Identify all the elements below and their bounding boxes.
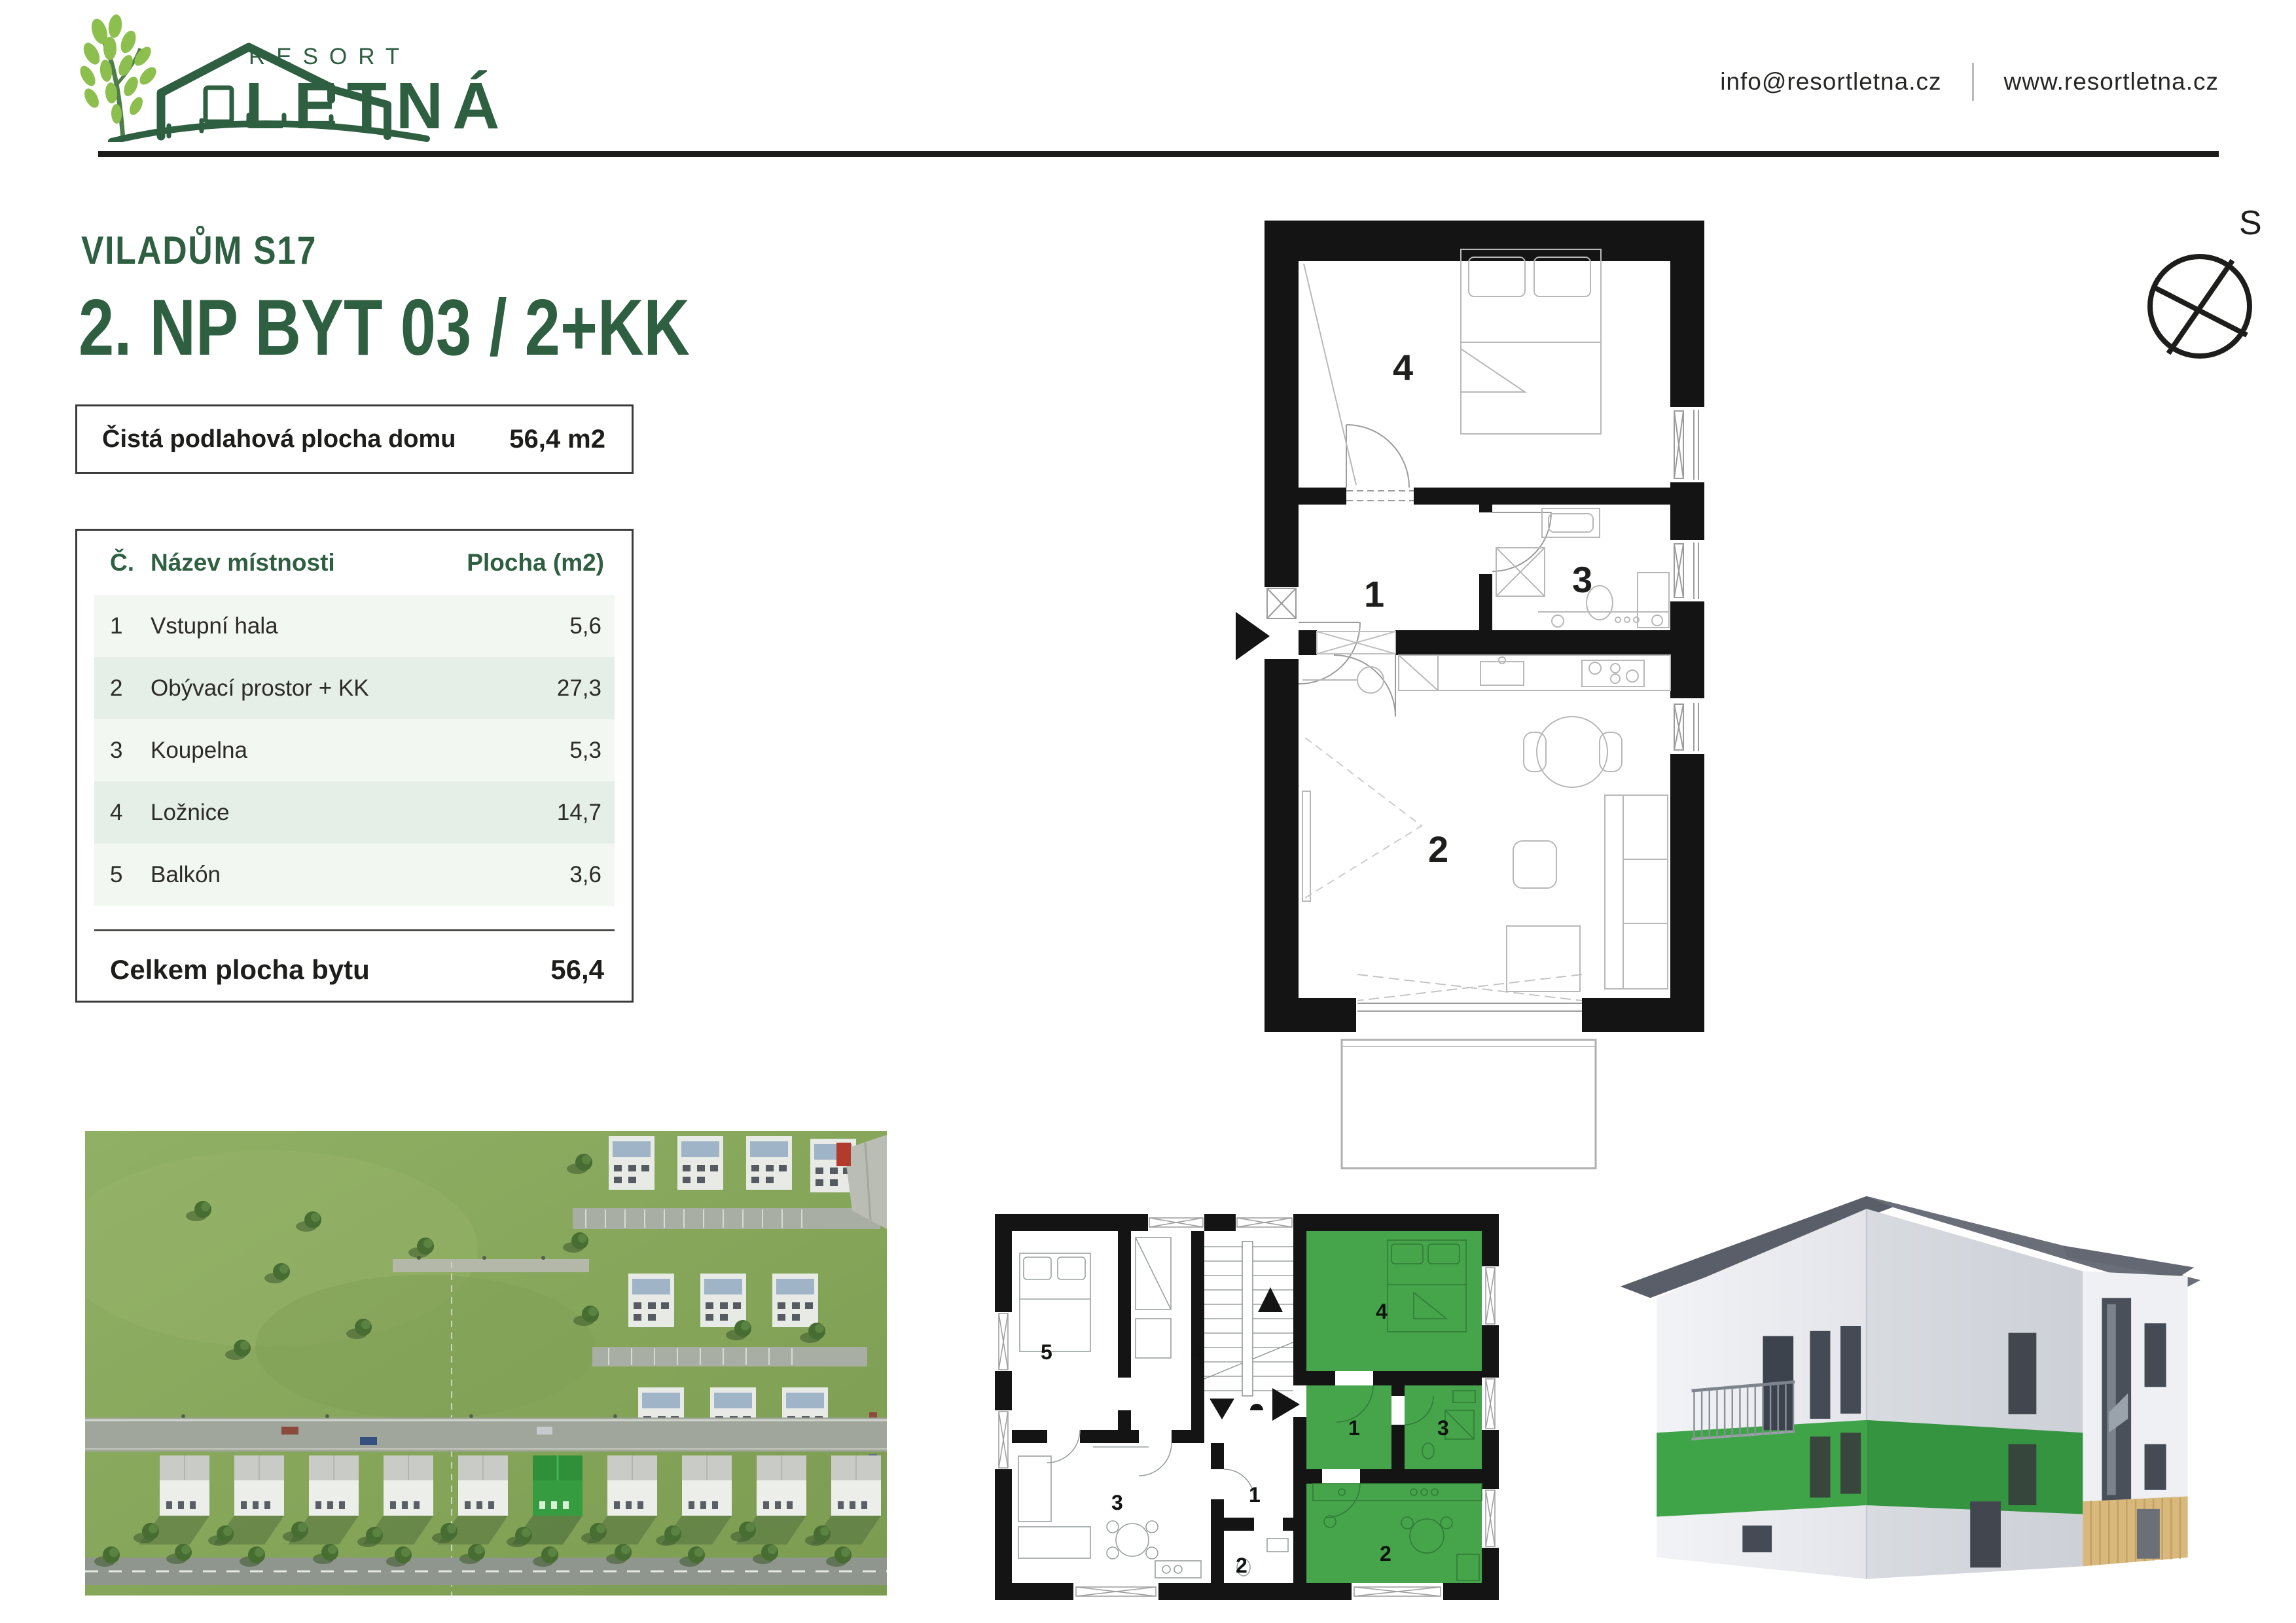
resort-letna-logo: RESORT LETNÁ bbox=[77, 8, 535, 142]
col-header-name: Název místnosti bbox=[151, 549, 467, 577]
green-room-2: 2 bbox=[1380, 1542, 1391, 1565]
storey-floorplan: 5 4 1 3 2 4 1 3 2 bbox=[995, 1214, 1499, 1600]
staircase bbox=[1204, 1241, 1300, 1421]
north-compass-icon: S bbox=[2123, 194, 2296, 383]
green-room-3: 3 bbox=[1437, 1416, 1449, 1440]
net-floor-area-label: Čistá podlahová plocha domu bbox=[102, 425, 456, 454]
footpath bbox=[393, 1259, 589, 1272]
row-name: Koupelna bbox=[151, 738, 569, 764]
row-number: 2 bbox=[110, 675, 151, 702]
email-link[interactable]: info@resortletna.cz bbox=[1720, 68, 1941, 96]
building-title: VILADŮM S17 bbox=[81, 228, 317, 273]
room-label-3: 3 bbox=[1572, 559, 1592, 600]
table-row: 2 Obývací prostor + KK 27,3 bbox=[94, 657, 615, 719]
table-row: 5 Balkón 3,6 bbox=[94, 844, 615, 906]
left-room-3: 3 bbox=[1111, 1491, 1123, 1514]
row-number: 5 bbox=[110, 862, 151, 888]
green-room-4: 4 bbox=[1376, 1300, 1388, 1323]
table-total-row: Celkem plocha bytu 56,4 bbox=[77, 931, 632, 1008]
website-link[interactable]: www.resortletna.cz bbox=[2004, 68, 2219, 96]
tree-icon bbox=[77, 14, 159, 139]
room-label-1: 1 bbox=[1364, 573, 1384, 615]
row-name: Vstupní hala bbox=[151, 613, 569, 639]
green-band-right bbox=[1867, 1420, 2083, 1514]
flat-datasheet-page: RESORT LETNÁ info@resortletna.cz www.res… bbox=[0, 0, 2296, 1623]
compass-north-letter: S bbox=[2239, 204, 2262, 242]
total-value: 56,4 bbox=[550, 954, 604, 986]
left-room-1: 1 bbox=[1249, 1483, 1261, 1507]
brand-word-1: RESORT bbox=[249, 44, 410, 69]
row-area: 27,3 bbox=[557, 675, 601, 702]
row-name: Obývací prostor + KK bbox=[151, 675, 557, 702]
entrance-arrow-icon bbox=[1236, 612, 1270, 660]
rooms-table: Č. Název místnosti Plocha (m2) 1 Vstupní… bbox=[75, 529, 634, 1003]
row-number: 3 bbox=[110, 738, 151, 764]
col-header-area: Plocha (m2) bbox=[467, 549, 604, 577]
header-contacts: info@resortletna.cz www.resortletna.cz bbox=[1720, 63, 2219, 101]
apartment-floorplan: 4 1 3 2 bbox=[1232, 221, 1704, 1176]
net-floor-area-box: Čistá podlahová plocha domu 56,4 m2 bbox=[75, 404, 634, 474]
row-area: 5,3 bbox=[569, 738, 601, 764]
green-room-1: 1 bbox=[1348, 1416, 1360, 1440]
row-area: 14,7 bbox=[557, 800, 601, 826]
header-rule bbox=[98, 151, 2219, 157]
row-name: Balkón bbox=[151, 862, 569, 888]
net-floor-area-value: 56,4 m2 bbox=[509, 425, 605, 454]
table-row: 1 Vstupní hala 5,6 bbox=[94, 595, 615, 657]
row-number: 1 bbox=[110, 613, 151, 639]
left-room-4: 4 bbox=[1191, 1340, 1203, 1364]
balcony-outline bbox=[1342, 1040, 1596, 1168]
col-header-number: Č. bbox=[110, 549, 151, 577]
wood-cladding bbox=[2083, 1496, 2187, 1566]
left-room-5: 5 bbox=[1041, 1340, 1052, 1364]
room-label-4: 4 bbox=[1393, 347, 1413, 388]
contacts-divider bbox=[1972, 63, 1974, 101]
table-row: 3 Koupelna 5,3 bbox=[94, 719, 615, 781]
rooms-table-header: Č. Název místnosti Plocha (m2) bbox=[77, 531, 632, 595]
total-label: Celkem plocha bytu bbox=[110, 954, 370, 986]
main-road bbox=[85, 1414, 887, 1452]
left-room-2: 2 bbox=[1236, 1554, 1247, 1577]
building-3d-render bbox=[1594, 1145, 2222, 1597]
room-label-2: 2 bbox=[1428, 829, 1448, 870]
aerial-site-photo bbox=[85, 1131, 887, 1596]
brand-word-2: LETNÁ bbox=[245, 69, 509, 142]
row-area: 3,6 bbox=[569, 862, 601, 888]
apartment-title: 2. NP BYT 03 / 2+KK bbox=[79, 281, 690, 373]
row-area: 5,6 bbox=[569, 613, 601, 639]
row-name: Ložnice bbox=[151, 800, 557, 826]
table-row: 4 Ložnice 14,7 bbox=[94, 781, 615, 844]
row-number: 4 bbox=[110, 800, 151, 826]
